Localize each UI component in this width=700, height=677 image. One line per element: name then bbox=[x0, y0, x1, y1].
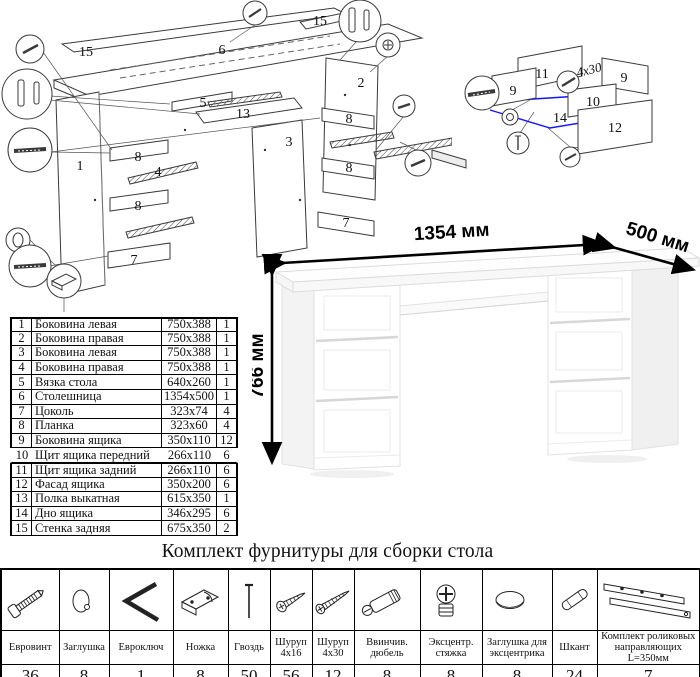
part-size: 750x388 bbox=[162, 332, 217, 346]
table-row: 5Вязка стола640x2601 bbox=[10, 375, 238, 390]
hardware-names-row: Евровинт Заглушка Евроключ Ножка Гвоздь … bbox=[1, 631, 700, 665]
screw-4x30-icon bbox=[313, 573, 353, 627]
hardware-name: Шуруп 4x16 bbox=[270, 631, 312, 665]
wooden-dowel-icon bbox=[553, 573, 597, 627]
table-row: 14Дно ящика346x2956 bbox=[10, 507, 238, 522]
part-name: Дно ящика bbox=[32, 507, 162, 521]
part-size: 350x110 bbox=[162, 434, 217, 448]
part-no: 14 bbox=[12, 507, 32, 521]
part-name: Боковина ящика bbox=[32, 434, 162, 448]
screw-4x16-icon bbox=[271, 573, 311, 627]
table-row: 3Боковина левая750x3881 bbox=[10, 346, 238, 361]
hardware-name: Евроключ bbox=[109, 631, 173, 665]
hardware-qty: 8 bbox=[173, 665, 228, 677]
part-label: 8 bbox=[135, 150, 142, 165]
part-name: Боковина правая bbox=[32, 361, 162, 375]
part-qty: 6 bbox=[217, 478, 236, 492]
part-qty: 2 bbox=[217, 521, 236, 535]
part-label: 6 bbox=[219, 43, 226, 58]
part-label: 8 bbox=[346, 161, 353, 176]
part-label: 15 bbox=[79, 45, 93, 60]
part-name: Стенка задняя bbox=[32, 521, 162, 535]
part-size: 675x350 bbox=[162, 521, 217, 535]
parts-list-table: 1Боковина левая750x3881 2Боковина правая… bbox=[10, 317, 238, 536]
table-row: 12Фасад ящика350x2006 bbox=[10, 478, 238, 493]
foot-icon bbox=[174, 573, 224, 627]
hardware-qty: 8 bbox=[482, 665, 552, 677]
part-label: 15 bbox=[313, 14, 327, 29]
euro-screw-icon bbox=[2, 573, 52, 627]
part-size: 615x350 bbox=[162, 492, 217, 506]
part-size: 750x388 bbox=[162, 346, 217, 360]
part-label: 1 bbox=[77, 159, 84, 174]
part-name: Боковина левая bbox=[32, 346, 162, 360]
part-no: 3 bbox=[12, 346, 32, 360]
desk-dimension-view: 1354 мм 500 мм 766 мм bbox=[252, 222, 700, 542]
part-label: 13 bbox=[236, 107, 250, 122]
assembly-instruction-page: 15 6 15 5 13 3 2 1 8 4 8 7 8 8 7 bbox=[0, 0, 700, 677]
part-label: 4 bbox=[155, 165, 162, 180]
hardware-name: Шкант bbox=[552, 631, 597, 665]
table-row: 15Стенка задняя675x3502 bbox=[10, 521, 238, 536]
part-size: 640x260 bbox=[162, 375, 217, 389]
part-no: 4 bbox=[12, 361, 32, 375]
part-name: Цоколь bbox=[32, 405, 162, 419]
cam-lock-icon bbox=[421, 573, 471, 627]
hardware-qty: 8 bbox=[420, 665, 482, 677]
part-label: 10 bbox=[586, 95, 600, 110]
hardware-name: Ввинчив. дюбель bbox=[354, 631, 420, 665]
part-label: 5 bbox=[200, 96, 207, 111]
hardware-kit-title: Комплект фурнитуры для сборки стола bbox=[0, 541, 655, 563]
part-qty: 12 bbox=[217, 434, 236, 448]
part-size: 350x200 bbox=[162, 478, 217, 492]
cap-icon bbox=[60, 573, 104, 627]
part-label: 11 bbox=[535, 67, 548, 82]
part-size: 323x74 bbox=[162, 405, 217, 419]
drawer-slides-icon bbox=[598, 573, 694, 627]
hardware-name: Гвоздь bbox=[228, 631, 270, 665]
nail-icon bbox=[229, 573, 269, 627]
hardware-name: Эксцентр. стяжка bbox=[420, 631, 482, 665]
part-label: 8 bbox=[135, 199, 142, 214]
exploded-drawer-diagram: 11 9 9 10 14 12 4x30 bbox=[430, 0, 700, 190]
part-label: 14 bbox=[553, 111, 567, 126]
part-qty: 1 bbox=[217, 332, 236, 346]
part-size: 266x110 bbox=[162, 448, 217, 462]
hardware-qty: 8 bbox=[354, 665, 420, 677]
width-dimension-label: 1354 мм bbox=[413, 222, 490, 245]
part-no: 8 bbox=[12, 419, 32, 433]
table-row: 7Цоколь323x744 bbox=[10, 405, 238, 420]
hardware-name: Шуруп 4x30 bbox=[312, 631, 354, 665]
hex-key-icon bbox=[110, 573, 166, 627]
part-label: 7 bbox=[131, 253, 138, 268]
part-size: 323x60 bbox=[162, 419, 217, 433]
part-qty: 1 bbox=[217, 346, 236, 360]
hardware-name: Заглушка для эксцентрика bbox=[482, 631, 552, 665]
hardware-qty: 24 bbox=[552, 665, 597, 677]
table-row: 10Щит ящика передний266x1106 bbox=[10, 448, 238, 463]
part-qty: 1 bbox=[217, 361, 236, 375]
slide-rail bbox=[128, 162, 198, 184]
part-qty: 1 bbox=[217, 375, 236, 389]
part-no: 12 bbox=[12, 478, 32, 492]
cam-cover-icon bbox=[483, 573, 537, 627]
part-name: Фасад ящика bbox=[32, 478, 162, 492]
hardware-name: Комплект роликовых направляющих L=350мм bbox=[597, 631, 700, 665]
part-label: 8 bbox=[346, 112, 353, 127]
part-no: 1 bbox=[12, 319, 32, 331]
hardware-qty: 36 bbox=[1, 665, 59, 677]
part-label: 9 bbox=[510, 84, 517, 99]
part-qty: 1 bbox=[217, 492, 236, 506]
hardware-name: Евровинт bbox=[1, 631, 59, 665]
part-no: 15 bbox=[12, 521, 32, 535]
part-name: Щит ящика передний bbox=[32, 448, 162, 462]
hardware-qty: 12 bbox=[312, 665, 354, 677]
height-dimension-label: 766 мм bbox=[252, 333, 268, 398]
hardware-kit-table: Евровинт Заглушка Евроключ Ножка Гвоздь … bbox=[0, 568, 700, 677]
hardware-icons-row bbox=[1, 569, 700, 631]
part-name: Боковина левая bbox=[32, 319, 162, 331]
part-qty: 1 bbox=[217, 390, 236, 404]
slide-rail bbox=[126, 217, 194, 238]
part-no: 9 bbox=[12, 434, 32, 448]
table-row: 9Боковина ящика350x11012 bbox=[10, 434, 238, 449]
part-label: 9 bbox=[621, 71, 628, 86]
part-name: Вязка стола bbox=[32, 375, 162, 389]
part-size: 750x388 bbox=[162, 319, 217, 331]
part-name: Щит ящика задний bbox=[32, 464, 162, 477]
part-qty: 1 bbox=[217, 319, 236, 331]
part-label: 2 bbox=[358, 76, 365, 91]
table-row: 8Планка323x604 bbox=[10, 419, 238, 434]
table-row: 1Боковина левая750x3881 bbox=[10, 317, 238, 332]
hardware-qty: 7 bbox=[597, 665, 700, 677]
part-label: 12 bbox=[608, 121, 622, 136]
hardware-name: Заглушка bbox=[59, 631, 109, 665]
part-size: 1354x500 bbox=[162, 390, 217, 404]
hardware-name: Ножка bbox=[173, 631, 228, 665]
part-no: 10 bbox=[12, 448, 32, 462]
part-no: 5 bbox=[12, 375, 32, 389]
part-no: 2 bbox=[12, 332, 32, 346]
hardware-counts-row: 36 8 1 8 50 56 12 8 8 8 24 7 bbox=[1, 665, 700, 677]
part-qty: 4 bbox=[217, 405, 236, 419]
part-qty: 6 bbox=[217, 507, 236, 521]
table-row: 11Щит ящика задний266x1106 bbox=[10, 463, 238, 478]
table-row: 6Столешница1354x5001 bbox=[10, 390, 238, 405]
part-qty: 6 bbox=[217, 464, 236, 477]
part-name: Планка bbox=[32, 419, 162, 433]
part-no: 6 bbox=[12, 390, 32, 404]
table-row: 13Полка выкатная615x3501 bbox=[10, 492, 238, 507]
hardware-qty: 1 bbox=[109, 665, 173, 677]
part-no: 11 bbox=[12, 464, 32, 477]
part-qty: 4 bbox=[217, 419, 236, 433]
part-label: 3 bbox=[286, 135, 293, 150]
part-no: 13 bbox=[12, 492, 32, 506]
part-size: 346x295 bbox=[162, 507, 217, 521]
part-size: 750x388 bbox=[162, 361, 217, 375]
part-name: Полка выкатная bbox=[32, 492, 162, 506]
part-size: 266x110 bbox=[162, 464, 217, 477]
part-no: 7 bbox=[12, 405, 32, 419]
part-qty: 6 bbox=[217, 448, 236, 462]
hardware-qty: 50 bbox=[228, 665, 270, 677]
hardware-qty: 8 bbox=[59, 665, 109, 677]
table-row: 2Боковина правая750x3881 bbox=[10, 332, 238, 347]
part-name: Столешница bbox=[32, 390, 162, 404]
screw-in-dowel-icon bbox=[355, 573, 415, 627]
table-row: 4Боковина правая750x3881 bbox=[10, 361, 238, 376]
part-name: Боковина правая bbox=[32, 332, 162, 346]
hardware-qty: 56 bbox=[270, 665, 312, 677]
